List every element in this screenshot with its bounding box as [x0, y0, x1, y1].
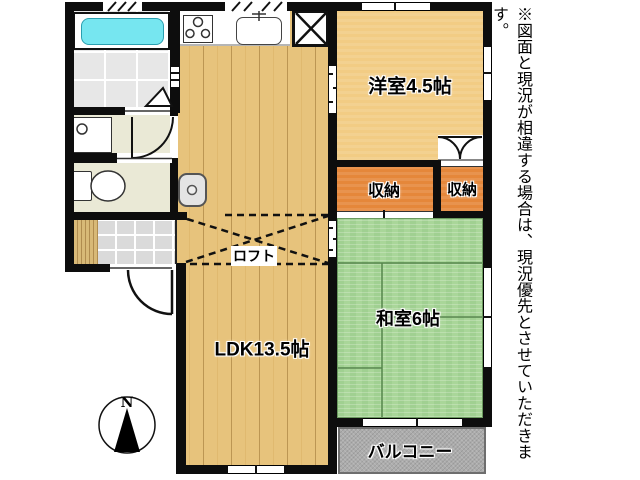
entrance-door-arc — [128, 270, 172, 314]
wall-segment — [176, 263, 186, 474]
sliding-door-western — [329, 66, 336, 113]
sliding-door-japanese — [329, 221, 336, 257]
wall-segment — [337, 418, 363, 427]
floorplan-image: 洋室4.5帖 収納 収納 和室6帖 LDK13.5帖 ロフト バルコニー N ※… — [0, 0, 640, 480]
toilet-door-opening — [117, 154, 172, 163]
wall-segment — [65, 212, 173, 220]
wall-segment — [433, 211, 483, 218]
bathtub — [73, 12, 170, 50]
washbasin — [72, 117, 112, 153]
genkan-tile — [98, 218, 175, 264]
bathtub-water — [81, 18, 164, 45]
room-label-storage-left: 収納 — [368, 177, 400, 201]
japanese-room-side-window — [483, 268, 492, 367]
wall-segment — [65, 2, 74, 272]
vent-window — [103, 2, 142, 11]
compass-needle — [114, 408, 140, 452]
ldk-floor — [176, 11, 328, 465]
genkan-step — [74, 218, 98, 264]
wall-segment — [170, 2, 180, 113]
kitchen-sink — [236, 17, 282, 45]
washroom-door-opening — [170, 116, 178, 158]
balcony-sliding-window — [363, 418, 462, 427]
washing-machine-pan — [178, 173, 207, 207]
wall-segment — [337, 160, 437, 167]
bathroom-vent-marks — [171, 67, 179, 87]
wall-segment — [433, 160, 441, 215]
wall-segment — [462, 418, 492, 427]
wall-segment — [65, 153, 117, 163]
closet-door-nook — [438, 135, 483, 160]
refrigerator-space — [292, 10, 329, 47]
fusuma-opening — [337, 211, 433, 218]
room-label-western: 洋室4.5帖 — [368, 72, 451, 99]
room-label-japanese: 和室6帖 — [376, 305, 440, 331]
kitchen-stove — [183, 15, 213, 43]
wall-segment — [65, 264, 110, 272]
entrance-door-opening — [110, 264, 172, 272]
wall-segment — [65, 107, 125, 115]
wall-segment — [173, 212, 187, 220]
kitchen-window — [225, 2, 287, 11]
room-label-storage-right: 収納 — [447, 179, 477, 200]
ldk-bottom-window — [228, 465, 284, 474]
western-room-side-window — [483, 47, 492, 100]
room-label-ldk: LDK13.5帖 — [214, 335, 309, 362]
room-label-loft: ロフト — [231, 246, 277, 266]
compass-north-label: N — [121, 395, 134, 411]
genkan-step-edge — [175, 220, 177, 264]
room-label-balcony: バルコニー — [368, 438, 453, 463]
storage-right-frame — [441, 160, 483, 167]
disclaimer-text: ※図面と現況が相違する場合は、現況優先とさせていただきます。 — [506, 6, 534, 478]
western-room-top-window — [362, 2, 430, 11]
bathroom-door-opening — [125, 107, 170, 115]
